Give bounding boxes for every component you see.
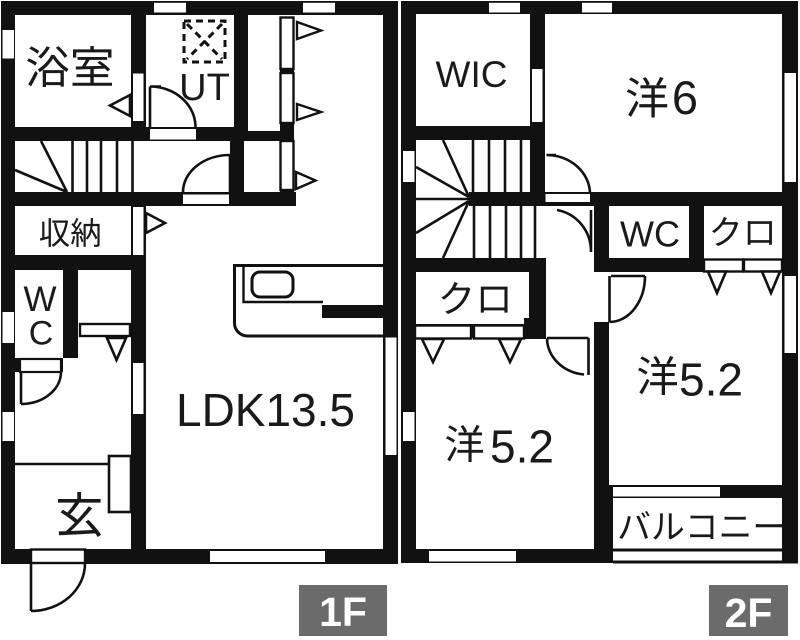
svg-text:6: 6	[672, 71, 698, 124]
svg-text:2F: 2F	[725, 590, 773, 636]
svg-text:WIC: WIC	[436, 54, 508, 95]
svg-text:LDK13.5: LDK13.5	[176, 384, 355, 436]
svg-text:5.2: 5.2	[490, 421, 554, 473]
svg-text:WC: WC	[620, 214, 680, 255]
svg-text:5.2: 5.2	[679, 354, 743, 406]
svg-text:C: C	[29, 315, 54, 353]
svg-text:W: W	[23, 280, 56, 319]
svg-text:1F: 1F	[319, 589, 367, 635]
